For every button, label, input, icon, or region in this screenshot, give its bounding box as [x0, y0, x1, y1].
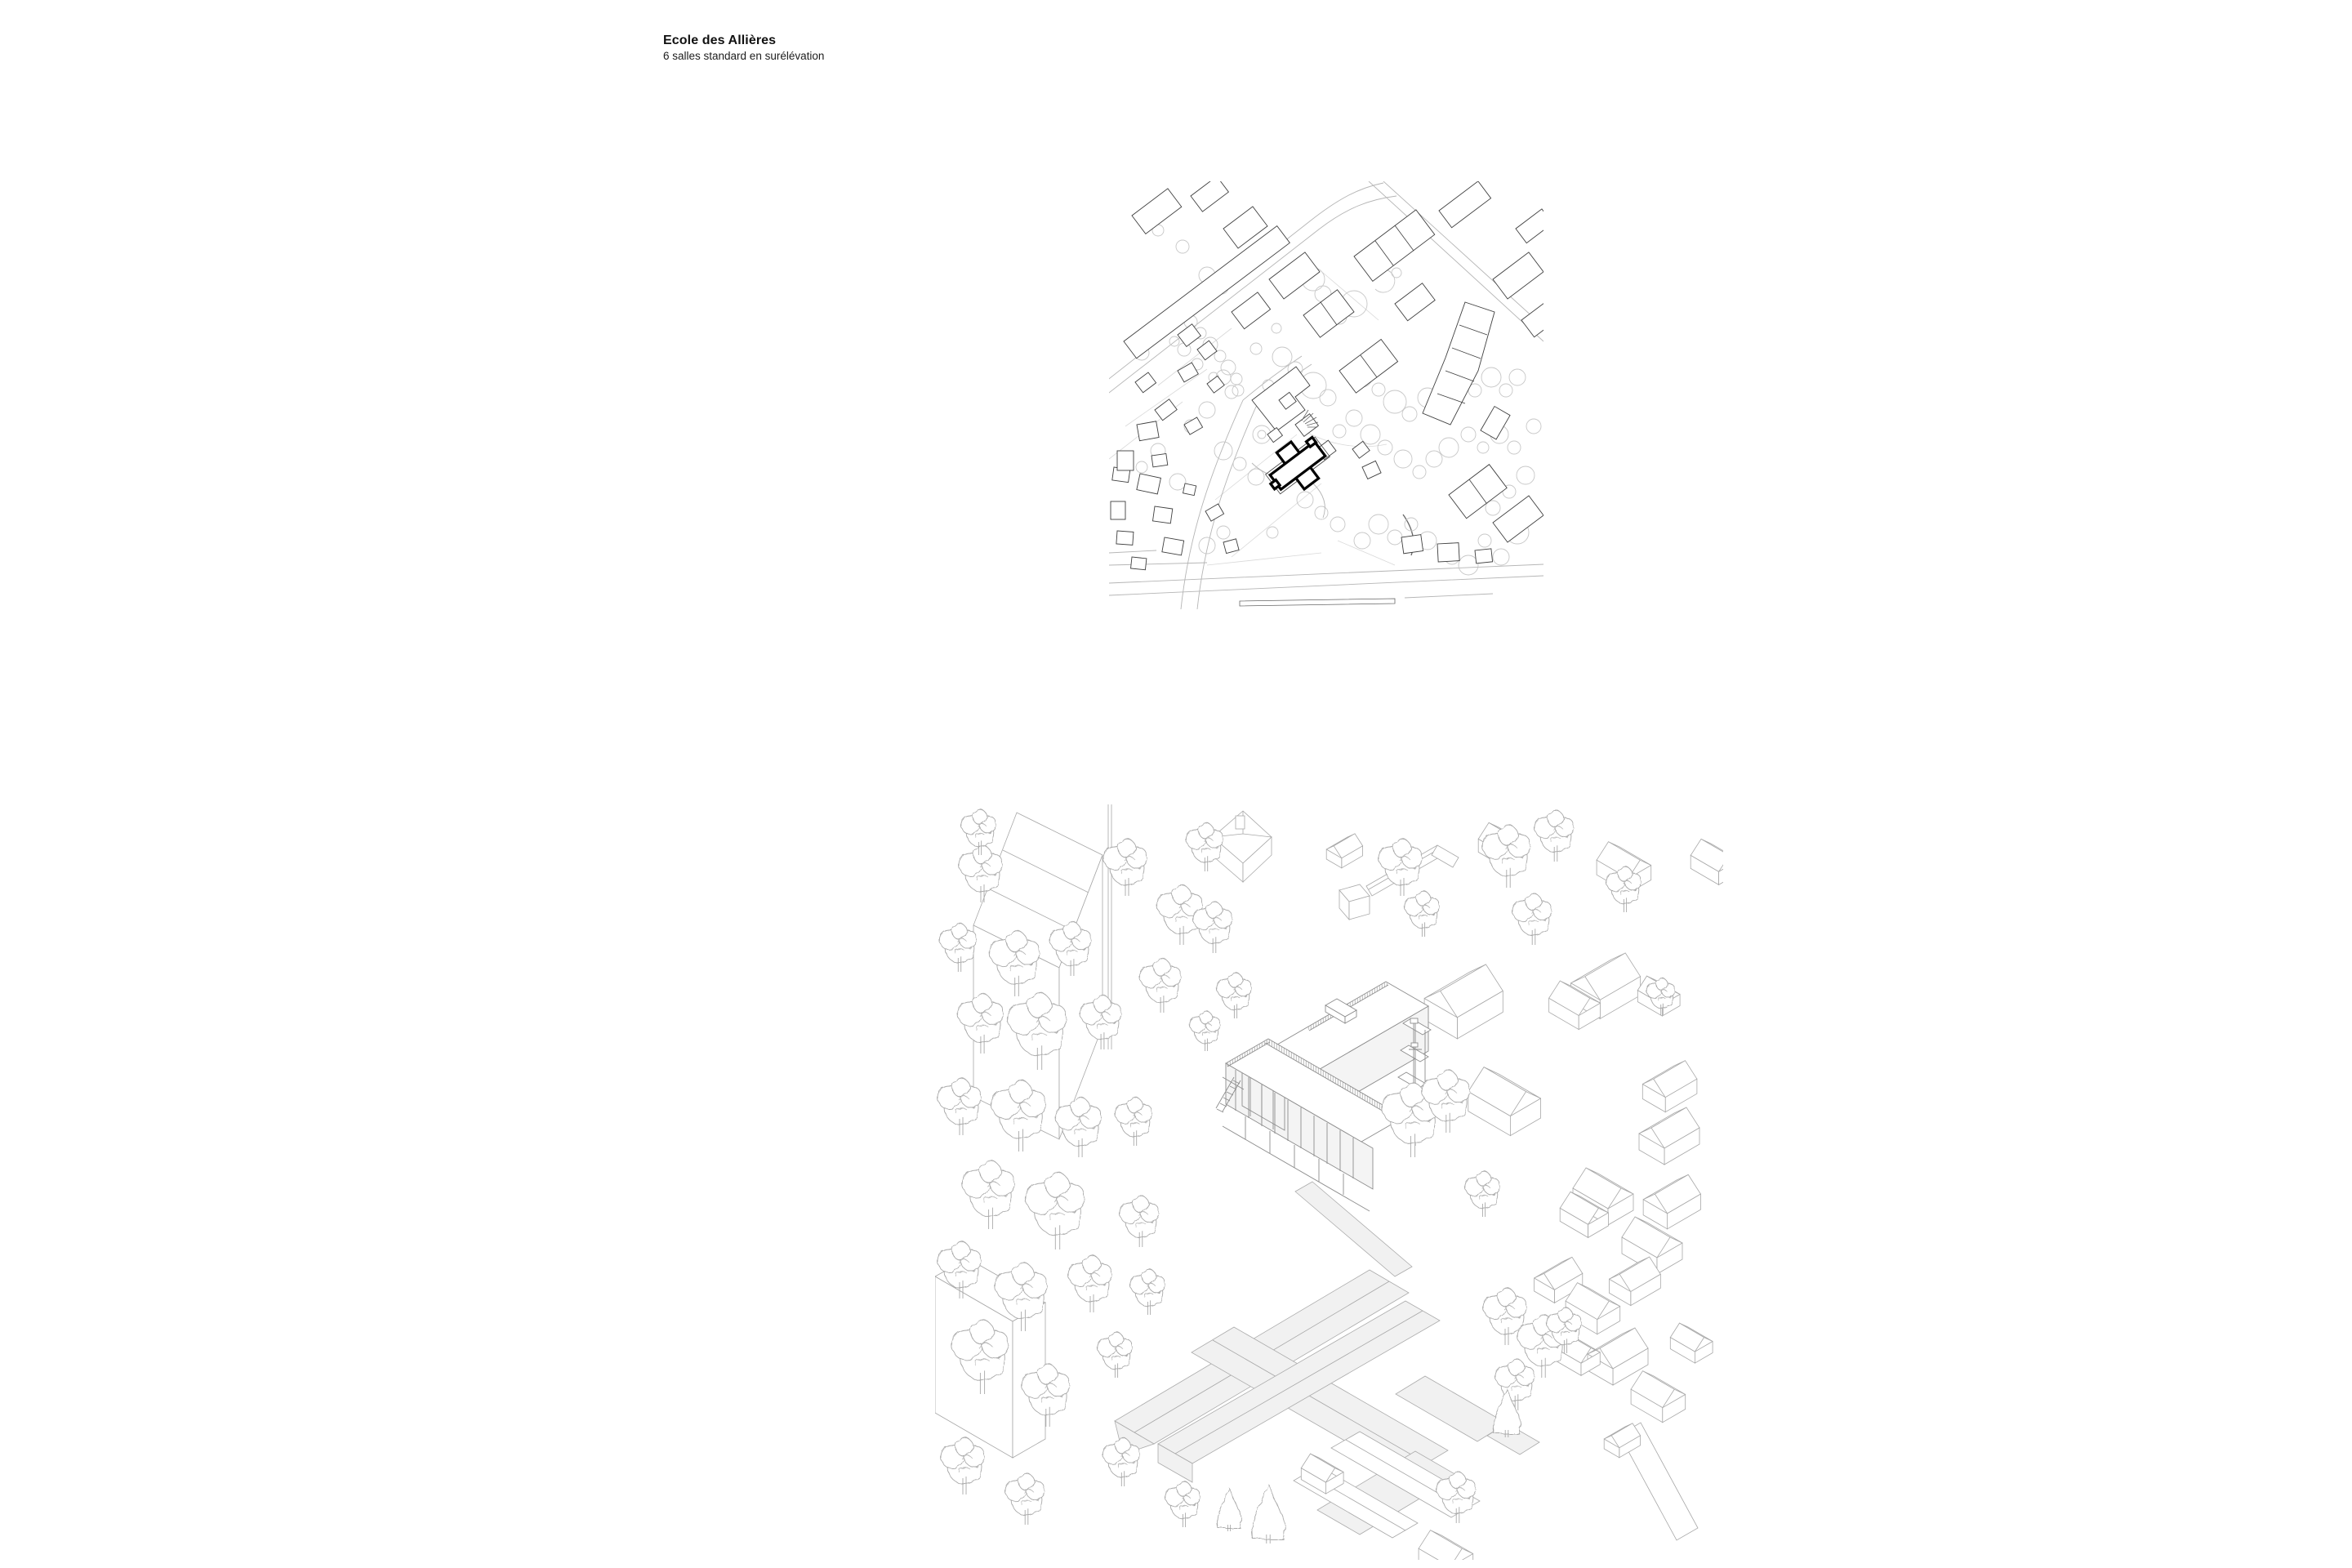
axonometric-figure	[935, 804, 1723, 1560]
axo-shed	[1339, 884, 1370, 920]
plan-trees	[1134, 225, 1541, 575]
plan-buildings	[1111, 181, 1543, 570]
page-title: Ecole des Allières	[663, 33, 824, 48]
page-subtitle: 6 salles standard en surélévation	[663, 50, 824, 63]
axo-hip-house	[1213, 811, 1272, 882]
plan-school-highlight	[1258, 430, 1334, 504]
site-plan-figure	[1109, 181, 1543, 609]
axonometric-drawing	[935, 804, 1723, 1560]
title-block: Ecole des Allières 6 salles standard en …	[663, 33, 824, 63]
site-plan-drawing	[1109, 181, 1543, 609]
